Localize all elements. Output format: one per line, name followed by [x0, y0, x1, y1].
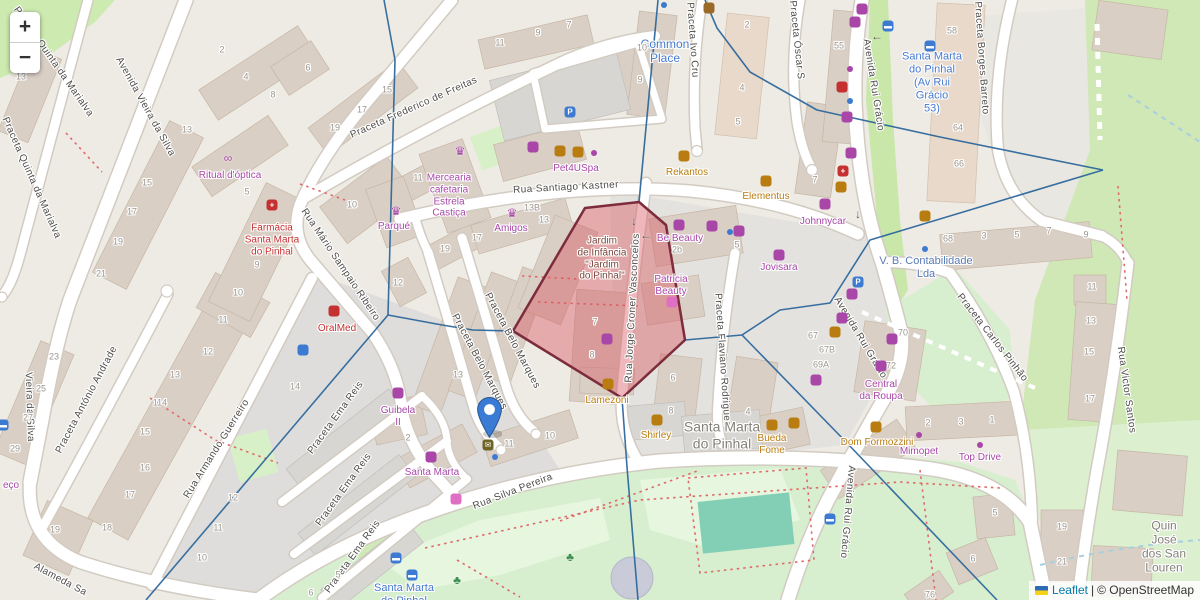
fitness-icon: [846, 148, 857, 159]
house-number: 5: [735, 117, 740, 128]
carwash-icon: [298, 345, 309, 356]
house-number: 15: [382, 85, 392, 96]
house-number: 17: [125, 490, 135, 501]
poi-label: Lamezoni: [585, 395, 628, 407]
cart-icon: [847, 289, 858, 300]
house-number: 6: [308, 588, 313, 599]
cafe-cup-icon: [704, 3, 715, 14]
bottle-icon: [734, 226, 745, 237]
poi-dot: [922, 246, 928, 252]
house-number: 19: [50, 525, 60, 536]
ukraine-flag-icon: [1035, 586, 1048, 595]
place-label: CommonPlace: [641, 37, 690, 65]
street-label: Praceta Ema Reis: [306, 379, 367, 456]
house-number: 2: [405, 433, 410, 444]
street-label: Avenida Rui Grácio: [860, 38, 886, 132]
crown-icon: ♛: [507, 207, 518, 219]
house-number: 12: [203, 347, 213, 358]
map-marker[interactable]: [477, 397, 502, 438]
house-number: 19: [330, 123, 340, 134]
attribution-separator: |: [1091, 583, 1094, 597]
cafe-cup-icon: [679, 151, 690, 162]
house-number: 9: [535, 28, 540, 39]
house-number: 72: [886, 361, 896, 372]
house-number: 11: [1087, 282, 1096, 293]
house-number: 8: [589, 350, 594, 361]
house-number: 13B: [524, 203, 540, 214]
hairdryer-icon: [667, 297, 678, 308]
poi-dot: [727, 229, 733, 235]
street-label: Avenida Vieira da Silva: [113, 55, 177, 158]
house-number: 17: [472, 233, 482, 244]
street-label: Praceta Ema Reis: [314, 451, 375, 528]
laundry-icon: [811, 375, 822, 386]
street-label: Rua Mário Sampaio Ribeiro: [298, 207, 382, 324]
house-number: 9: [1083, 230, 1088, 241]
crown-icon: ♛: [391, 205, 402, 217]
street-label: Praceta Óscar S: [786, 0, 806, 80]
cup-takeaway-icon: [789, 418, 800, 429]
oneway-arrow-icon: ←: [871, 30, 883, 42]
house-number: 11: [218, 315, 227, 326]
post-office-icon: ✉: [483, 440, 494, 451]
place-label: QuinJosédos SanLouren: [1142, 519, 1186, 576]
house-number: 5: [1014, 230, 1019, 241]
poi-label: MerceariacafetariaEstrelaCastiça: [427, 172, 471, 219]
place-label: Santa Martado Pinhal: [684, 418, 760, 451]
street-label: Alameda Sa: [31, 561, 88, 599]
paw-icon: [837, 82, 848, 93]
house-number: 10: [545, 431, 555, 442]
fuel-icon: [857, 4, 868, 15]
house-number: 19: [1057, 522, 1067, 533]
poi-dot: [847, 98, 853, 104]
openstreetmap-link[interactable]: © OpenStreetMap: [1097, 583, 1194, 597]
poi-label: Parqué: [378, 221, 410, 233]
parking-icon: P: [853, 277, 864, 288]
street-label: Vieira da Silva: [22, 372, 36, 442]
house-number: 29: [10, 444, 20, 455]
house-number: 23: [49, 352, 59, 363]
parking-icon: P: [565, 107, 576, 118]
house-number: 76: [925, 590, 935, 600]
house-number: 8: [668, 406, 673, 417]
house-number: 21: [1057, 557, 1067, 568]
house-number: 64: [953, 123, 963, 134]
house-number: 5: [335, 570, 340, 581]
house-number: 18: [102, 523, 112, 534]
house-number: 6: [970, 554, 975, 565]
street-label: Praceta Carlos Pinhão: [954, 292, 1030, 385]
house-number: 4: [739, 83, 744, 94]
house-number: 10: [637, 43, 647, 54]
house-number: 27: [23, 413, 33, 424]
house-number: 11: [504, 439, 513, 450]
bus-stop-icon: ▬: [883, 21, 894, 32]
house-number: 12: [393, 278, 403, 289]
house-number: 8: [270, 90, 275, 101]
poi-label: Johnnycar: [800, 216, 846, 228]
camera-icon: [707, 221, 718, 232]
poi-label: OralMed: [318, 323, 356, 335]
poi-dot: [661, 2, 667, 8]
poi-label: Shirley: [641, 430, 672, 442]
house-number: 67: [808, 331, 818, 342]
poi-label: Jovisara: [760, 262, 797, 274]
zoom-control: + −: [10, 12, 40, 73]
place-label: Santa Martado Pinhal(Av RuiGrácio53): [902, 51, 962, 116]
cafe-cup-icon: [652, 415, 663, 426]
poi-dot: [847, 66, 853, 72]
attribution-bar: Leaflet|© OpenStreetMap: [1029, 581, 1200, 600]
poi-dot: [977, 442, 983, 448]
oneway-arrow-icon: ↓: [855, 208, 861, 220]
street-label: Praceta Flaviano Rodrigues: [711, 293, 732, 427]
poi-label: Pet4USpa: [553, 163, 599, 175]
poi-label: GuibelaII: [381, 405, 415, 429]
house-number: 58: [947, 26, 957, 37]
poi-label: Be Beauty: [657, 233, 703, 245]
bench-icon: [767, 420, 778, 431]
house-number: 5: [992, 508, 997, 519]
cafe-cup-icon: [761, 176, 772, 187]
poi-label: Mimopet: [900, 446, 938, 458]
house-number: 17: [1085, 394, 1095, 405]
bench-icon: [674, 220, 685, 231]
street-label: Rua Santiago Kastner: [513, 179, 619, 196]
street-label: Rua Victor Santos: [1114, 346, 1138, 434]
poi-label: Elementus: [742, 191, 789, 203]
poi-label: Amigos: [494, 223, 527, 235]
poi-label: Ritual d'óptica: [199, 170, 262, 182]
house-number: 9: [637, 75, 642, 86]
house-number: 68: [943, 234, 953, 245]
house-number: 7: [592, 317, 597, 328]
poi-label: Santa Marta: [405, 467, 459, 479]
shop-bag-icon: [528, 142, 539, 153]
house-number: 3: [981, 231, 986, 242]
glasses-icon: ∞: [224, 152, 233, 164]
map-viewport[interactable]: Praceta Quinta da MarialvaPraceta Quinta…: [0, 0, 1200, 600]
pharmacy-cross-icon: +: [267, 200, 278, 211]
house-number: 19: [440, 244, 450, 255]
house-number: 11: [495, 38, 504, 49]
tooth-icon: [329, 306, 340, 317]
laundry-icon: [887, 334, 898, 345]
house-number: 12: [228, 493, 238, 504]
house-number: 13: [539, 215, 549, 226]
house-number: 17: [357, 105, 367, 116]
house-number: 70: [898, 328, 908, 339]
hairdresser-icon: [842, 112, 853, 123]
house-number: 13: [182, 125, 192, 136]
cupcake-icon: [451, 494, 462, 505]
playground-icon: ♣: [566, 551, 574, 563]
restaurant-icon: [871, 422, 882, 433]
street-label: Rua Silva Pereira: [471, 471, 554, 512]
shop-bag-icon: [837, 313, 848, 324]
house-number: 17: [127, 207, 137, 218]
pet-grooming-icon: [573, 147, 584, 158]
basket-icon: [602, 334, 613, 345]
bus-stop-icon: ▬: [0, 420, 9, 431]
house-number: 21: [96, 269, 106, 280]
poi-dot: [591, 150, 597, 156]
place-label: V. B. ContabilidadeLda: [879, 255, 972, 281]
pet-grooming-icon: [555, 146, 566, 157]
house-number: 2: [219, 45, 224, 56]
house-number: 7: [566, 20, 571, 31]
phone-icon: [920, 211, 931, 222]
house-number: 67B: [819, 345, 835, 356]
house-number: 25: [36, 384, 46, 395]
house-number: 15: [1084, 347, 1094, 358]
poi-label: PatriciaBeauty: [654, 274, 687, 298]
crown-icon: ♛: [455, 145, 466, 157]
street-label: Rua Armando Guerreiro: [182, 397, 253, 500]
house-number: 10: [347, 200, 357, 211]
cafe-cup-icon: [830, 327, 841, 338]
house-number: 10: [233, 288, 243, 299]
clothes-icon: [774, 250, 785, 261]
house-number: 2: [925, 418, 930, 429]
car-icon: [820, 199, 831, 210]
poi-label: Top Drive: [959, 452, 1001, 464]
street-label: Avenida Rui Grácio: [837, 465, 857, 559]
poi-label: Jardimde Infância"Jardimdo Pinhal": [578, 235, 627, 282]
poi-dot: [492, 454, 498, 460]
house-number: 4: [745, 407, 750, 418]
vase-icon: [426, 452, 437, 463]
poi-label: Centralda Roupa: [859, 379, 902, 403]
house-number: 7: [812, 175, 817, 186]
bus-stop-icon: ▬: [391, 553, 402, 564]
house-number: 19: [113, 237, 123, 248]
house-number: 1: [989, 415, 994, 426]
house-number: 7: [1046, 226, 1051, 237]
house-number: 10: [197, 553, 207, 564]
poi-label: FarmáciaSanta Martado Pinhal: [245, 222, 299, 257]
street-label: Praceta Quinta da Marialva: [0, 115, 63, 240]
label-layer: Praceta Quinta da MarialvaPraceta Quinta…: [0, 0, 1200, 600]
street-label: Praceta Borges Barreto: [971, 1, 991, 115]
street-label: Praceta António Andrade: [54, 344, 121, 455]
poi-dot: [916, 432, 922, 438]
house-number: 13: [16, 72, 26, 83]
poi-label: Rekantos: [666, 167, 708, 179]
firstaid-icon: +: [838, 166, 849, 177]
house-number: 14: [290, 382, 300, 393]
house-number: 11: [213, 523, 222, 534]
laundry-icon: [876, 361, 887, 372]
house-number: 4: [243, 72, 248, 83]
fastfood-icon: [836, 182, 847, 193]
street-label: Praceta Frederico de Freitas: [349, 75, 480, 142]
cafe-cup-icon: [603, 379, 614, 390]
house-number: 13: [453, 370, 463, 381]
house-number: 11: [413, 173, 422, 184]
house-number: 2: [744, 20, 749, 31]
house-number: 15: [142, 178, 152, 189]
bus-stop-icon: ▬: [925, 41, 936, 52]
oneway-arrow-icon: ←: [640, 229, 652, 241]
oneway-arrow-icon: ↓: [631, 215, 637, 227]
poi-label: eço: [3, 480, 19, 492]
poi-label: BuedaFome: [758, 433, 787, 457]
house-number: 5: [734, 240, 739, 251]
bar-icon: [850, 17, 861, 28]
playground-icon: ♣: [453, 574, 461, 586]
house-number: 69A: [813, 360, 829, 371]
bus-stop-icon: ▬: [407, 570, 418, 581]
house-number: 9: [254, 260, 259, 271]
leaflet-link[interactable]: Leaflet: [1052, 583, 1088, 597]
house-number: 16: [140, 463, 150, 474]
house-number: 55: [834, 41, 844, 52]
house-number: 6: [305, 63, 310, 74]
place-label: Santa Martado Pinhal: [374, 582, 434, 600]
house-number: 6: [670, 373, 675, 384]
bus-stop-icon: ▬: [825, 514, 836, 525]
house-number: 15: [140, 427, 150, 438]
zoom-in-button[interactable]: +: [10, 12, 40, 43]
house-number: 5: [244, 187, 249, 198]
house-number: 114: [153, 398, 167, 409]
house-number: 66: [954, 159, 964, 170]
zoom-out-button[interactable]: −: [10, 43, 40, 73]
camera-icon: [393, 388, 404, 399]
house-number: 2b: [672, 245, 682, 256]
house-number: 3: [958, 417, 963, 428]
house-number: 13: [170, 370, 180, 381]
house-number: 13: [1086, 316, 1096, 327]
